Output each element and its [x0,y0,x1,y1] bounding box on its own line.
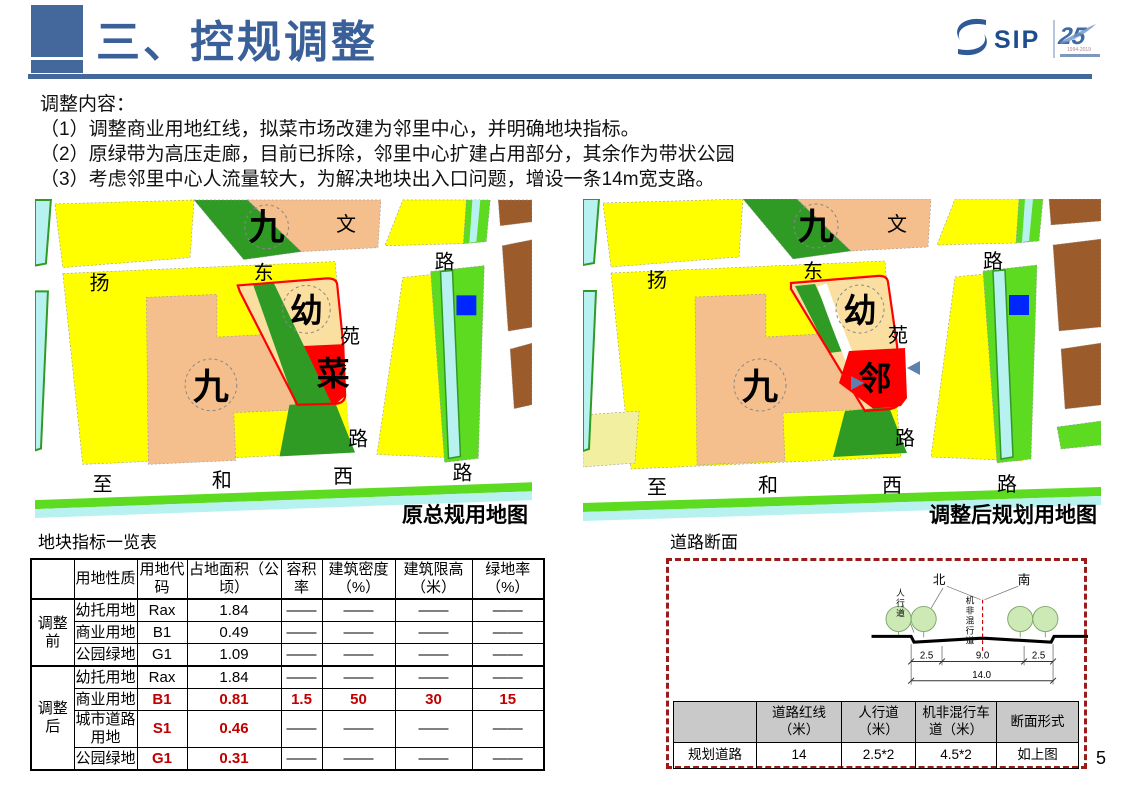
indicator-cell: —— [322,644,395,667]
indicator-col-header: 容积 率 [281,559,322,599]
road-section-box: 北南人行道机非混行道2.59.02.514.0 道路红线 （米）人行道 （米）机… [666,558,1087,769]
map-label: 西 [333,466,353,488]
indicator-cell: —— [322,748,395,771]
map-label: 2.5 [920,651,933,662]
indicator-cell: 30 [395,689,472,711]
map-label: 九 [249,208,285,248]
table-row: 规划道路142.5*24.5*2如上图 [674,743,1079,769]
indicator-cell: 城市道路用地 [74,711,137,748]
indicator-cell: —— [395,599,472,622]
indicator-cell: 1.84 [187,666,281,689]
map-label: 扬 [90,272,110,294]
indicator-col-header: 用地性质 [74,559,137,599]
indicator-cell: 商业用地 [74,622,137,644]
indicator-cell: 0.49 [187,622,281,644]
indicator-cell: Rax [137,599,187,622]
indicator-cell: G1 [137,644,187,667]
road-section-title: 道路断面 [670,528,738,553]
road-cell: 4.5*2 [916,743,997,769]
indicator-cell: 1.84 [187,599,281,622]
map-label: 幼 [844,292,877,329]
indicator-cell: 15 [472,689,544,711]
table-row: 调整后幼托用地Rax1.84———————— [31,666,544,689]
page-number: 5 [1096,748,1106,769]
map-label: 菜 [317,355,350,392]
indicator-col-header: 用地代 码 [137,559,187,599]
indicator-col-header: 建筑密度 （%） [322,559,395,599]
indicator-cell: —— [281,666,322,689]
indicator-cell: —— [281,748,322,771]
anniversary-tagline-bar [1060,54,1100,57]
map-label: 人行道 [896,588,905,618]
map-label: 南 [1018,572,1031,587]
indicator-cell: 幼托用地 [74,599,137,622]
road-cross-section-diagram: 北南人行道机非混行道2.59.02.514.0 [853,563,1088,703]
map-label: 2.5 [1032,651,1045,662]
map-label: 至 [647,477,667,499]
indicator-col-header: 占地面积（公 顷） [187,559,281,599]
map-label: 路 [983,250,1003,273]
map-label: 路 [348,428,368,450]
indicator-cell: —— [322,666,395,689]
map-label: 14.0 [972,670,991,681]
indicator-col-header: 绿地率 （%） [472,559,544,599]
adjusted-landuse-map-svg: 九九幼邻扬东路文苑路至和西路 [583,199,1101,521]
indicator-cell: —— [281,711,322,748]
map-label: 文 [887,213,907,236]
road-profile [872,636,1088,642]
map-label: 九 [798,206,834,247]
road-col-header: 道路红线 （米） [757,702,842,743]
map-label: 邻 [859,360,892,397]
road-col-header: 断面形式 [997,702,1079,743]
intro-items: （1）调整商业用地红线，拟菜市场改建为邻里中心，并明确地块指标。（2）原绿带为高… [40,117,1090,192]
indicator-cell: —— [395,711,472,748]
indicator-cell: —— [472,748,544,771]
road-cell: 2.5*2 [842,743,916,769]
map-label: 苑 [888,324,908,347]
indicator-cell: S1 [137,711,187,748]
indicator-cell: —— [281,599,322,622]
map-label: 路 [997,473,1017,496]
indicator-col-header: 建筑限高 （米） [395,559,472,599]
table-row: 商业用地B10.49———————— [31,622,544,644]
slide: 三、控规调整 SIP 25 1994-2019 调整内容： （1）调整商业用地红… [0,0,1123,794]
indicator-cell: 公园绿地 [74,748,137,771]
map-label: 苑 [340,326,360,348]
indicator-cell: 幼托用地 [74,666,137,689]
indicator-cell: B1 [137,689,187,711]
indicator-cell: —— [395,666,472,689]
road-col-header: 机非混行车 道（米） [916,702,997,743]
sip-logo-text: SIP [994,26,1040,54]
adjustment-content: 调整内容： （1）调整商业用地红线，拟菜市场改建为邻里中心，并明确地块指标。（2… [40,92,1090,192]
left-map-caption: 原总规用地图 [402,499,528,529]
intro-item: （1）调整商业用地红线，拟菜市场改建为邻里中心，并明确地块指标。 [40,117,1090,142]
indicator-cell: —— [472,711,544,748]
map-label: 东 [803,260,823,283]
map-label: 东 [254,262,274,284]
indicator-cell: —— [395,644,472,667]
road-col-header [674,702,757,743]
map-label: 路 [895,427,915,450]
indicator-cell: —— [472,644,544,667]
road-cell: 14 [757,743,842,769]
title-decoration-bar [31,60,83,73]
map-label: 机非混行道 [966,595,975,646]
map-label: 至 [93,474,113,496]
group-label: 调整前 [31,599,74,666]
indicator-cell: B1 [137,622,187,644]
title-rule [28,74,1092,79]
indicator-cell: 1.09 [187,644,281,667]
road-cell: 规划道路 [674,743,757,769]
table-row: 商业用地B10.811.5503015 [31,689,544,711]
table-row: 调整前幼托用地Rax1.84———————— [31,599,544,622]
indicator-cell: —— [472,666,544,689]
indicator-table: 用地性质用地代 码占地面积（公 顷）容积 率建筑密度 （%）建筑限高 （米）绿地… [30,558,545,771]
intro-item: （2）原绿带为高压走廊，目前已拆除，邻里中心扩建占用部分，其余作为带状公园 [40,142,1090,167]
indicator-cell: —— [281,622,322,644]
indicator-cell: —— [395,748,472,771]
sip-swoosh-bottom [958,34,987,55]
indicator-cell: —— [395,622,472,644]
map-label: 九 [742,366,778,407]
map-label: 九 [193,367,229,407]
anniversary-years: 1994-2019 [1067,47,1091,53]
adjusted-landuse-map: 九九幼邻扬东路文苑路至和西路 调整后规划用地图 [583,199,1101,521]
blue-parcel [1009,295,1029,315]
indicator-col-header [31,559,74,599]
map-label: 路 [435,252,455,274]
map-label: 和 [758,474,778,497]
map-label: 路 [452,462,472,484]
sip-logo-graphic: SIP 25 1994-2019 [948,14,1104,66]
sip-logo: SIP 25 1994-2019 [948,14,1104,66]
sip-swoosh-top [957,19,986,40]
map-label: 和 [212,470,232,492]
indicator-cell: —— [322,599,395,622]
indicator-cell: —— [281,644,322,667]
page-title: 三、控规调整 [96,6,378,70]
table-row: 城市道路用地S10.46———————— [31,711,544,748]
map-label: 西 [882,475,902,497]
road-table: 道路红线 （米）人行道 （米）机非混行车 道（米）断面形式规划道路142.5*2… [673,701,1079,769]
indicator-cell: 0.46 [187,711,281,748]
indicator-cell: —— [322,622,395,644]
original-landuse-map-svg: 九九幼菜扬东路文苑路至和西路 [35,199,532,521]
map-label: 9.0 [976,651,989,662]
table-row: 公园绿地G11.09———————— [31,644,544,667]
indicator-cell: 50 [322,689,395,711]
map-label: 扬 [647,269,667,292]
table-row: 公园绿地G10.31———————— [31,748,544,771]
title-decoration-square [31,5,83,57]
indicator-cell: 0.31 [187,748,281,771]
indicator-cell: 0.81 [187,689,281,711]
indicator-cell: —— [472,599,544,622]
road-col-header: 人行道 （米） [842,702,916,743]
road-cell: 如上图 [997,743,1079,769]
indicator-cell: 商业用地 [74,689,137,711]
group-label: 调整后 [31,666,74,770]
blue-parcel [456,295,476,315]
intro-item: （3）考虑邻里中心人流量较大，为解决地块出入口问题，增设一条14m宽支路。 [40,167,1090,192]
indicator-cell: 1.5 [281,689,322,711]
indicator-table-title: 地块指标一览表 [38,528,157,553]
indicator-cell: Rax [137,666,187,689]
map-label: 幼 [290,292,323,329]
indicator-cell: —— [322,711,395,748]
indicator-cell: —— [472,622,544,644]
right-map-caption: 调整后规划用地图 [929,499,1097,529]
original-landuse-map: 九九幼菜扬东路文苑路至和西路 原总规用地图 [35,199,532,521]
map-label: 北 [933,573,946,587]
indicator-cell: 公园绿地 [74,644,137,667]
intro-heading: 调整内容： [40,92,1090,117]
indicator-cell: G1 [137,748,187,771]
map-label: 文 [336,214,356,236]
